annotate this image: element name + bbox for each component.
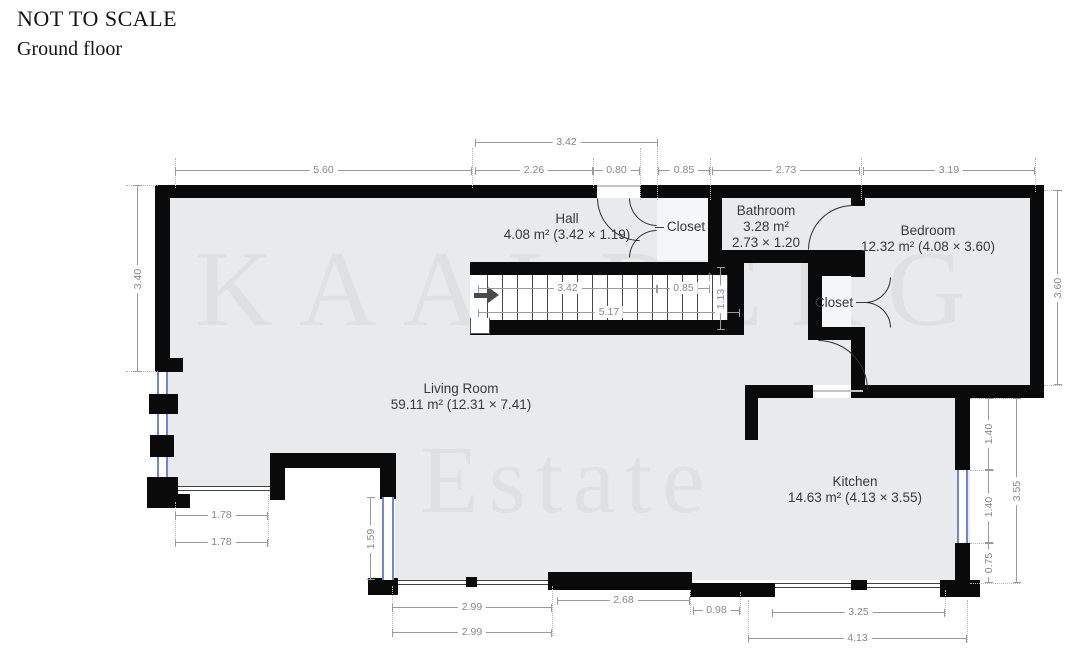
- wall-bedroom-bottom-left: [745, 385, 813, 398]
- dimension-label: 3.60: [1052, 273, 1064, 301]
- wall-stairs-top: [470, 262, 742, 275]
- hall-area: 4.08 m² (3.42 × 1.19): [504, 227, 630, 243]
- guide-line: [268, 495, 269, 546]
- room-label-kitchen: Kitchen 14.63 m² (4.13 × 3.55): [788, 474, 922, 506]
- window-left-2: [157, 414, 168, 435]
- wall-bedroom-bottom-right: [863, 385, 1044, 398]
- dimension-line: 2.26: [475, 170, 593, 171]
- wall-pillar-2: [150, 435, 174, 457]
- wall-step-horizontal: [270, 453, 395, 468]
- wall-kitchen-right-bottom: [955, 543, 970, 583]
- bathroom-size: 2.73 × 1.20: [732, 235, 800, 251]
- dimension-label: 1.13: [715, 284, 727, 312]
- floor-plan-canvas: NOT TO SCALE Ground floor KAALBERG Estat…: [0, 0, 1072, 648]
- dimension-label: 1.40: [983, 420, 995, 448]
- dimension-label: 4.13: [843, 632, 871, 644]
- closet-hall-leader: [655, 227, 664, 228]
- dimension-label: 1.59: [365, 524, 377, 552]
- wall-left: [155, 185, 170, 365]
- wall-stairs-right: [728, 262, 744, 335]
- guide-line: [1035, 158, 1036, 192]
- floor-title: Ground floor: [17, 38, 122, 61]
- dimension-label: 0.85: [670, 164, 698, 176]
- wall-tick-bottom-2: [851, 580, 867, 590]
- guide-line: [970, 583, 1020, 584]
- dimension-line: 0.80: [593, 170, 640, 171]
- wall-pillar-3-ext: [147, 494, 190, 508]
- wall-bottom-mid: [548, 572, 692, 590]
- dimension-line: 1.78: [175, 515, 268, 516]
- guide-line: [640, 148, 641, 200]
- wall-bottom-kitchen-left: [690, 583, 775, 597]
- room-label-closet-hall: Closet: [667, 219, 705, 235]
- wall-stairs-bottom: [470, 320, 742, 335]
- dimension-line: 2.99: [392, 632, 552, 633]
- dimension-line: 1.78: [175, 542, 268, 543]
- dimension-label: 3.25: [844, 606, 872, 618]
- kitchen-area: 14.63 m² (4.13 × 3.55): [788, 490, 922, 506]
- bathroom-name: Bathroom: [732, 203, 800, 219]
- wall-kitchen-stub: [745, 398, 758, 440]
- room-label-bathroom: Bathroom 3.28 m² 2.73 × 1.20: [732, 203, 800, 251]
- wall-corner-step-bottom: [368, 578, 398, 595]
- dimension-label: 3.42: [553, 282, 581, 294]
- dimension-line: 3.60: [1057, 190, 1058, 385]
- guide-line: [740, 592, 741, 614]
- dimension-line: 2.68: [557, 600, 690, 601]
- wall-closet-bedroom-bottom: [808, 327, 865, 340]
- wall-top-right: [640, 185, 1044, 198]
- window-step: [382, 497, 394, 580]
- stair-direction-arrow: [474, 293, 488, 298]
- dimension-line: 2.99: [392, 607, 552, 608]
- dimension-label: 2.73: [772, 164, 800, 176]
- guide-line: [126, 371, 158, 372]
- wall-bedroom-left-top: [851, 192, 865, 206]
- dimension-line: 0.85: [657, 288, 710, 289]
- closet-bedroom-leader: [856, 302, 865, 303]
- dimension-label: 0.75: [983, 549, 995, 577]
- dimension-line: 0.75: [988, 543, 989, 583]
- dimension-label: 2.99: [458, 601, 486, 613]
- kitchen-name: Kitchen: [788, 474, 922, 490]
- guide-line: [472, 148, 473, 188]
- dimension-label: 5.60: [309, 164, 337, 176]
- guide-line: [861, 158, 862, 200]
- floor-fill-living-lower: [395, 385, 755, 580]
- dimension-line: 0.85: [658, 170, 710, 171]
- window-bottom-left: [178, 486, 270, 491]
- wall-bedroom-right: [1030, 185, 1044, 385]
- dimension-label: 2.68: [609, 594, 637, 606]
- room-label-closet-bedroom: Closet: [815, 295, 853, 311]
- hall-name: Hall: [504, 211, 630, 227]
- scale-note: NOT TO SCALE: [17, 6, 177, 32]
- bedroom-door-threshold: [813, 390, 863, 392]
- dimension-line: 3.19: [863, 170, 1035, 171]
- wall-step-left: [270, 453, 285, 500]
- wall-step-right: [380, 453, 396, 499]
- stair-notch: [470, 318, 490, 334]
- dimension-label: 3.42: [552, 136, 580, 148]
- dimension-label: 5.17: [595, 306, 623, 318]
- dimension-label: 1.78: [207, 536, 235, 548]
- room-label-hall: Hall 4.08 m² (3.42 × 1.19): [504, 211, 630, 243]
- stair-direction-arrow-head: [488, 287, 499, 303]
- bedroom-name: Bedroom: [861, 223, 995, 239]
- dimension-line: 3.42: [478, 288, 657, 289]
- living-room-area: 59.11 m² (12.31 × 7.41): [391, 397, 531, 413]
- bedroom-area: 12.32 m² (4.08 × 3.60): [861, 239, 995, 255]
- dimension-label: 0.98: [702, 604, 730, 616]
- guide-line: [126, 185, 158, 186]
- guide-line: [710, 158, 711, 200]
- wall-tick-bottom-1: [466, 577, 477, 587]
- dimension-line: 3.55: [1016, 398, 1017, 583]
- dimension-line: 1.59: [370, 497, 371, 580]
- living-room-name: Living Room: [391, 381, 531, 397]
- guide-line: [967, 600, 968, 642]
- entrance-threshold: [597, 185, 640, 187]
- dimension-label: 3.55: [1011, 476, 1023, 504]
- window-kitchen-right: [957, 470, 968, 543]
- wall-pillar-1: [149, 394, 178, 414]
- wall-top-left: [155, 185, 597, 198]
- dimension-label: 3.19: [935, 164, 963, 176]
- window-left-1: [157, 372, 168, 394]
- dimension-line: 1.13: [720, 267, 721, 330]
- dimension-line: 2.73: [712, 170, 860, 171]
- wall-kitchen-right-top: [955, 397, 970, 470]
- dimension-label: 1.40: [983, 492, 995, 520]
- dimension-label: 3.40: [132, 264, 144, 292]
- wall-left-foot: [155, 358, 183, 372]
- closet-hall-name: Closet: [667, 219, 705, 235]
- dimension-label: 0.85: [669, 282, 697, 294]
- dimension-label: 2.26: [520, 164, 548, 176]
- guide-line: [690, 590, 691, 614]
- dimension-label: 2.99: [458, 626, 486, 638]
- dimension-line: 1.40: [988, 398, 989, 470]
- dimension-line: 3.40: [137, 185, 138, 372]
- dimension-line: 3.25: [772, 612, 945, 613]
- dimension-line: 3.42: [475, 142, 658, 143]
- bathroom-area: 3.28 m²: [732, 219, 800, 235]
- floor-fill-step: [283, 385, 395, 453]
- dimension-line: 1.40: [988, 470, 989, 543]
- guide-line: [1044, 385, 1062, 386]
- dimension-label: 0.80: [602, 164, 630, 176]
- guide-line: [552, 586, 553, 636]
- guide-line: [945, 590, 946, 616]
- dimension-line: 5.60: [175, 170, 472, 171]
- dimension-line: 4.13: [748, 638, 967, 639]
- dimension-line: 0.98: [693, 610, 740, 611]
- window-left-3: [157, 457, 168, 477]
- floor-fill-left: [165, 385, 283, 487]
- room-label-living-room: Living Room 59.11 m² (12.31 × 7.41): [391, 381, 531, 413]
- room-label-bedroom: Bedroom 12.32 m² (4.08 × 3.60): [861, 223, 995, 255]
- dimension-label: 1.78: [207, 509, 235, 521]
- wall-bathroom-bottom: [712, 250, 865, 263]
- stair-up-arrow: ↑: [706, 268, 714, 285]
- dimension-line: 5.17: [478, 312, 740, 313]
- closet-bedroom-name: Closet: [815, 295, 853, 311]
